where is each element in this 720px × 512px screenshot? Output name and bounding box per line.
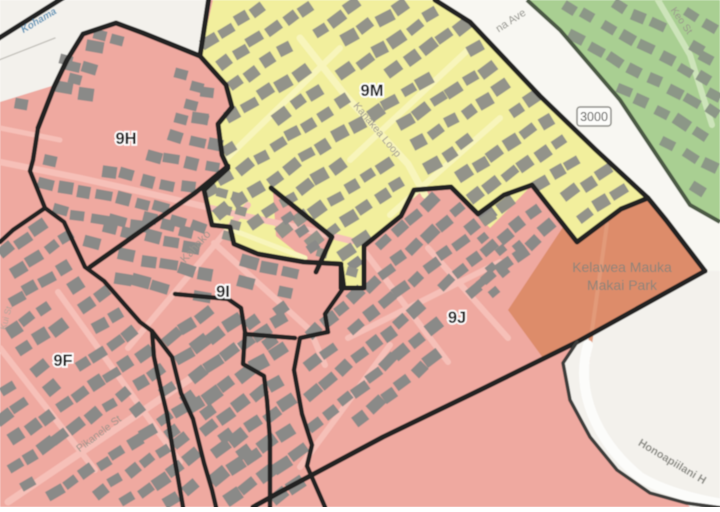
svg-text:9M: 9M [361, 82, 384, 100]
svg-text:9I: 9I [216, 283, 230, 301]
svg-text:9F: 9F [53, 352, 72, 370]
svg-text:Kelawea Mauka: Kelawea Mauka [572, 259, 672, 275]
svg-text:9H: 9H [115, 130, 136, 148]
svg-text:9J: 9J [448, 309, 466, 327]
svg-text:3000: 3000 [580, 110, 608, 124]
svg-text:Makai Park: Makai Park [587, 277, 658, 293]
